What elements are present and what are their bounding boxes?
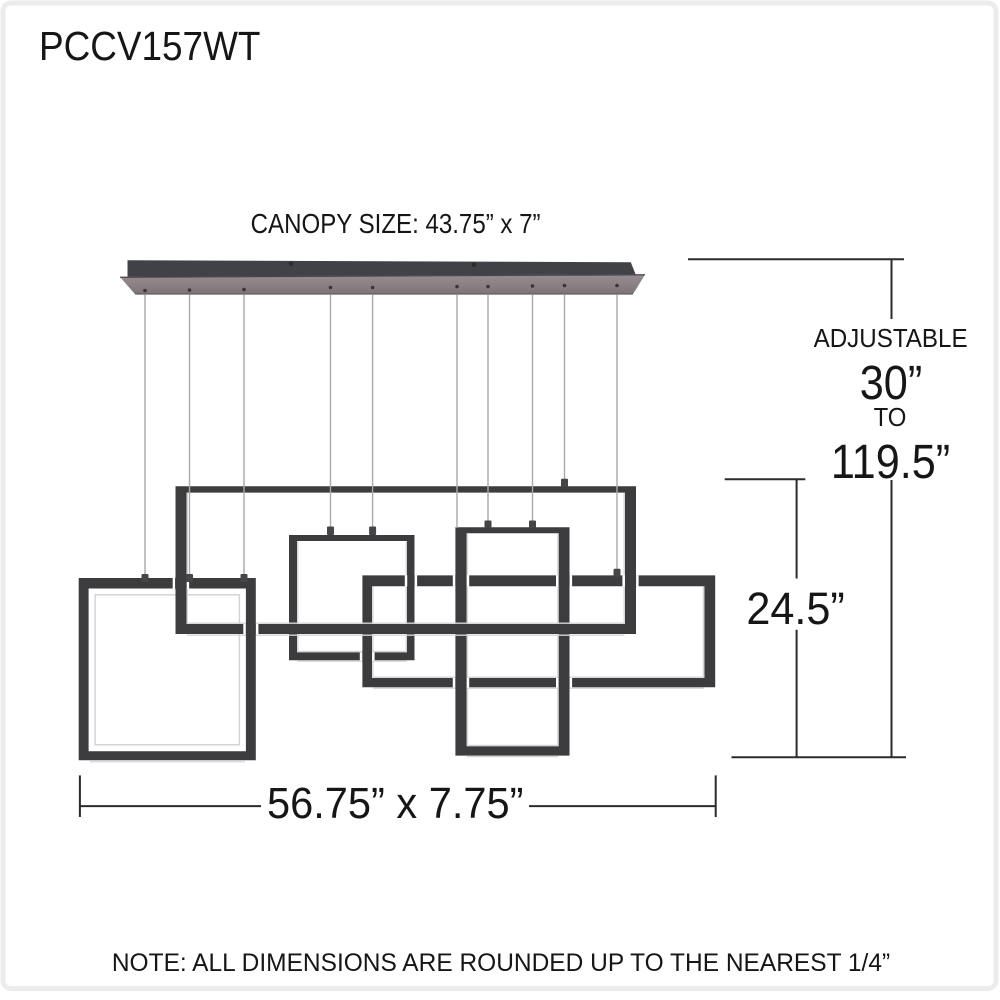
svg-text:119.5”: 119.5” xyxy=(831,435,950,489)
svg-text:TO: TO xyxy=(874,403,907,432)
svg-text:ADJUSTABLE: ADJUSTABLE xyxy=(814,324,968,353)
svg-text:NOTE: ALL DIMENSIONS ARE ROUND: NOTE: ALL DIMENSIONS ARE ROUNDED UP TO T… xyxy=(112,950,890,977)
svg-text:56.75” x 7.75”: 56.75” x 7.75” xyxy=(267,779,524,828)
svg-text:30”: 30” xyxy=(860,356,922,410)
svg-text:CANOPY SIZE: 43.75” x 7”: CANOPY SIZE: 43.75” x 7” xyxy=(251,207,541,239)
svg-text:PCCV157WT: PCCV157WT xyxy=(39,24,260,69)
svg-text:24.5”: 24.5” xyxy=(746,584,844,634)
